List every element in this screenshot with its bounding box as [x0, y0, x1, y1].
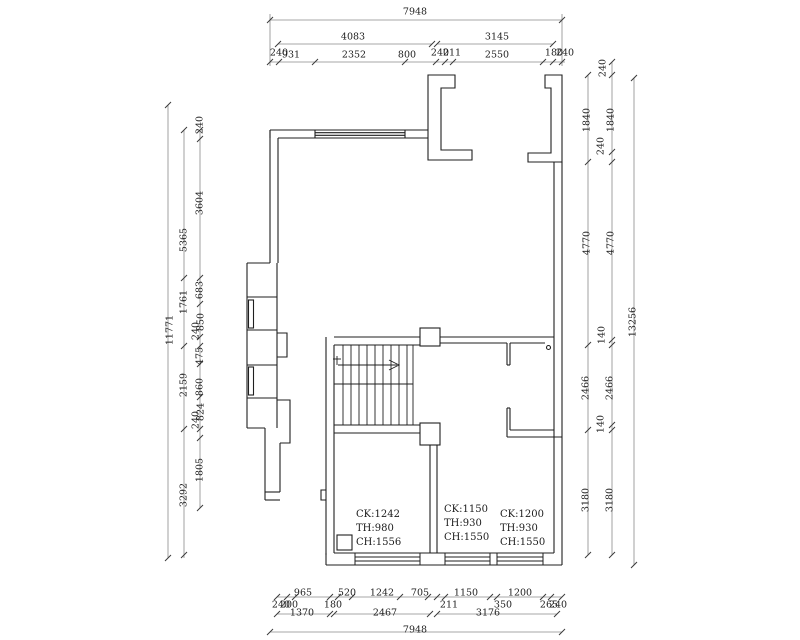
- window2-th: TH:930: [444, 517, 489, 531]
- dim-bot-705: 705: [411, 588, 429, 598]
- dim-bot-3176: 3176: [476, 608, 500, 618]
- window1-ch: CH:1556: [356, 536, 401, 550]
- dim-left-2159: 2159: [179, 373, 189, 397]
- window1-ck: CK:1242: [356, 508, 401, 522]
- dim-left-475: 475: [195, 347, 205, 365]
- dim-top-211: 211: [443, 48, 461, 58]
- dim-left-3292: 3292: [179, 483, 189, 507]
- dim-right-2466b: 2466: [605, 376, 615, 400]
- dim-left-240a: 240: [195, 116, 205, 134]
- window-annotation-2: CK:1150 TH:930 CH:1550: [444, 503, 489, 544]
- dim-left-1805: 1805: [195, 458, 205, 482]
- dim-top-800: 800: [398, 50, 416, 60]
- dim-top-3145: 3145: [485, 32, 509, 42]
- dim-bot-1150: 1150: [454, 588, 478, 598]
- dim-bot-1200: 1200: [508, 588, 532, 598]
- dim-left-5365: 5365: [179, 228, 189, 252]
- window1-th: TH:980: [356, 522, 401, 536]
- dim-right-140b: 140: [596, 415, 606, 433]
- dim-right-4770b: 4770: [606, 231, 616, 255]
- window3-th: TH:930: [500, 522, 545, 536]
- dim-left-240c: 240: [191, 411, 201, 429]
- dim-right-1840b: 1840: [606, 108, 616, 132]
- dim-top-2352: 2352: [342, 50, 366, 60]
- floor-plan-canvas: 7948 4083 3145 240 931 2352 800 240 211 …: [0, 0, 800, 640]
- dim-bot-180: 180: [324, 600, 342, 610]
- dim-left-total: 11771: [165, 315, 175, 345]
- dim-bot-2467: 2467: [373, 608, 397, 618]
- dim-top-4083: 4083: [341, 32, 365, 42]
- dim-left-683: 683: [195, 281, 205, 299]
- dim-right-3180a: 3180: [581, 488, 591, 512]
- dim-right-3180b: 3180: [605, 488, 615, 512]
- staircase: [333, 345, 413, 425]
- dim-top-240c: 240: [556, 48, 574, 58]
- dim-top-2550: 2550: [485, 50, 509, 60]
- dim-right-2466a: 2466: [581, 376, 591, 400]
- dim-right-140a: 140: [597, 326, 607, 344]
- dim-bot-1242: 1242: [370, 588, 394, 598]
- window-annotation-1: CK:1242 TH:980 CH:1556: [356, 508, 401, 549]
- dim-right-4770a: 4770: [582, 231, 592, 255]
- dim-right-240a: 240: [598, 59, 608, 77]
- dim-bottom-total: 7948: [403, 625, 427, 635]
- window-annotation-3: CK:1200 TH:930 CH:1550: [500, 508, 545, 549]
- dim-left-860: 860: [195, 378, 205, 396]
- dim-bot-211: 211: [440, 600, 458, 610]
- dim-bot-1370: 1370: [290, 608, 314, 618]
- dim-left-240b: 240: [191, 322, 201, 340]
- window3-ck: CK:1200: [500, 508, 545, 522]
- window2-ck: CK:1150: [444, 503, 489, 517]
- dim-right-1840a: 1840: [582, 108, 592, 132]
- bay-window-wall: [247, 263, 290, 500]
- window3-ch: CH:1550: [500, 536, 545, 550]
- dim-left-1761: 1761: [179, 290, 189, 314]
- dim-top-total: 7948: [403, 7, 427, 17]
- dim-right-total: 13256: [628, 307, 638, 337]
- dim-bot-965: 965: [294, 588, 312, 598]
- bottom-windows: [355, 553, 543, 565]
- dim-bot-520: 520: [338, 588, 356, 598]
- exterior-walls: [270, 75, 562, 565]
- dim-bot-240b: 240: [549, 600, 567, 610]
- dim-left-3604: 3604: [195, 191, 205, 215]
- dim-right-240b: 240: [596, 137, 606, 155]
- window2-ch: CH:1550: [444, 531, 489, 545]
- dim-top-931: 931: [282, 50, 300, 60]
